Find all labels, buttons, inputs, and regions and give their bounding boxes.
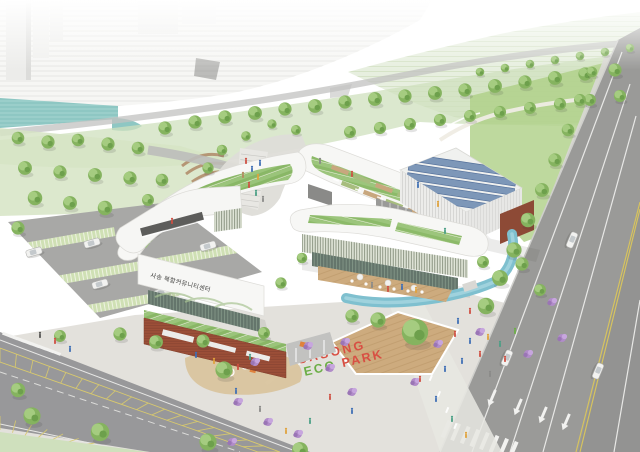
person — [419, 376, 421, 382]
person — [469, 338, 471, 344]
person — [213, 358, 215, 364]
person — [285, 428, 287, 434]
person — [242, 172, 244, 178]
person — [309, 418, 311, 424]
person — [371, 282, 373, 288]
left-wing-louvers — [214, 208, 242, 232]
aerial-rendering: SASONG ECO PARK — [0, 0, 640, 452]
parasol — [385, 280, 391, 286]
person — [351, 171, 353, 177]
person — [248, 182, 250, 188]
person — [469, 308, 471, 314]
person — [251, 166, 253, 172]
person — [435, 396, 437, 402]
person — [454, 331, 456, 337]
top-fade — [0, 0, 640, 70]
person — [465, 432, 467, 438]
person — [249, 354, 251, 360]
person — [245, 158, 247, 164]
person — [499, 341, 501, 347]
person — [451, 416, 453, 422]
person — [54, 338, 56, 344]
person — [257, 174, 259, 180]
person — [237, 364, 239, 370]
person — [262, 196, 264, 202]
person — [415, 287, 417, 293]
cafe-table — [406, 289, 409, 292]
person — [444, 228, 446, 234]
person — [457, 318, 459, 324]
cafe-table — [392, 287, 395, 290]
cafe-table — [378, 285, 381, 288]
person — [514, 328, 516, 334]
person — [69, 346, 71, 352]
person — [329, 394, 331, 400]
cafe-table — [420, 290, 423, 293]
person — [39, 332, 41, 338]
person — [255, 190, 257, 196]
parasol — [357, 274, 363, 280]
person — [235, 388, 237, 394]
person — [489, 371, 491, 377]
cafe-table — [364, 282, 367, 285]
person — [479, 351, 481, 357]
person — [504, 356, 506, 362]
person — [444, 366, 446, 372]
person — [351, 408, 353, 414]
person — [259, 406, 261, 412]
rendering-stage: SASONG ECO PARK — [0, 0, 640, 452]
person — [437, 201, 439, 207]
person — [195, 352, 197, 358]
person — [319, 158, 321, 164]
person — [487, 334, 489, 340]
cafe-table — [350, 279, 353, 282]
person — [417, 182, 419, 188]
person — [259, 160, 261, 166]
person — [461, 358, 463, 364]
person — [171, 218, 173, 224]
person — [387, 286, 389, 292]
person — [401, 284, 403, 290]
